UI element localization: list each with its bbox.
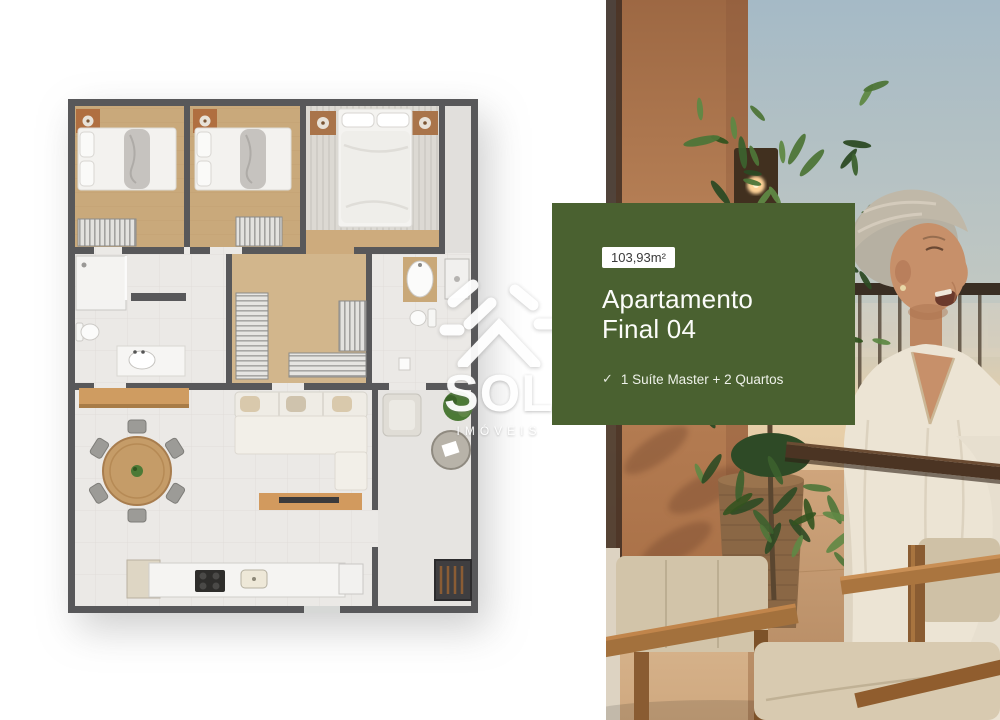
unit-title: Apartamento Final 04 <box>602 284 821 344</box>
unit-info-card: 103,93m² Apartamento Final 04 ✓ 1 Suíte … <box>552 203 855 425</box>
unit-feature-row: ✓ 1 Suíte Master + 2 Quartos <box>602 371 821 387</box>
unit-feature-text: 1 Suíte Master + 2 Quartos <box>621 372 783 387</box>
floor-plan-image <box>64 95 484 620</box>
area-badge: 103,93m² <box>602 247 675 268</box>
check-icon: ✓ <box>602 371 613 387</box>
unit-title-line1: Apartamento <box>602 284 753 314</box>
real-estate-marketing-page: SOL IMÓVEIS 103,93m² Apartamento Final 0… <box>0 0 1000 720</box>
unit-title-line2: Final 04 <box>602 314 696 344</box>
